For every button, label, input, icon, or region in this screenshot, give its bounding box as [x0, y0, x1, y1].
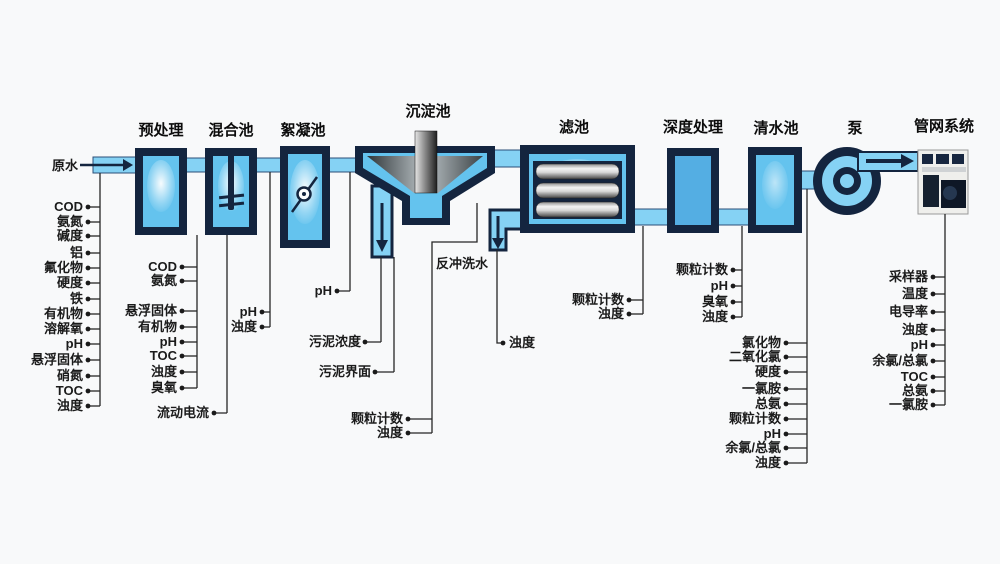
pipe-advanced-clearwater: [717, 209, 752, 225]
filter-media-icon: [533, 161, 622, 219]
center-shaft-icon: [415, 131, 437, 193]
param-label-raw_water-6: 铁: [70, 291, 83, 307]
param-label-raw_water-11: 硝氮: [57, 368, 83, 384]
clearwater-tank: [748, 147, 802, 233]
stage-title-pretreatment: 预处理: [138, 123, 183, 139]
stage-title-sedimentation: 沉淀池: [405, 104, 450, 120]
param-label-pretreatment-3: 有机物: [138, 319, 177, 335]
stage-title-filter: 滤池: [559, 120, 589, 136]
stage-title-network: 管网系统: [914, 119, 974, 135]
param-label-pretreatment-7: 臭氧: [151, 380, 177, 396]
param-label-advanced-1: pH: [711, 278, 728, 294]
param-label-network-8: 一氯胺: [889, 397, 928, 413]
pump-icon: [813, 147, 918, 215]
param-label-network-3: 浊度: [902, 322, 928, 338]
param-label-settled_water-1: 浊度: [377, 425, 403, 441]
param-label-pretreatment-5: TOC: [150, 348, 177, 364]
param-label-raw_water-5: 硬度: [57, 275, 83, 291]
param-label-raw_water-7: 有机物: [44, 306, 83, 322]
filter-tank: [520, 145, 635, 233]
param-label-raw_water-10: 悬浮固体: [31, 352, 83, 368]
stage-title-pump: 泵: [847, 121, 862, 137]
param-label-mixing-1: 浊度: [231, 319, 257, 335]
param-label-raw_water-0: COD: [54, 199, 83, 215]
param-label-clearwater-3: 一氯胺: [742, 381, 781, 397]
mixing-tank: [205, 148, 257, 235]
pipe-mixing-flocculation: [255, 158, 282, 172]
pretreatment-tank: [135, 148, 187, 235]
raw-water-label: 原水: [52, 158, 78, 174]
stage-title-clearwater: 清水池: [753, 121, 798, 137]
param-label-pretreatment-2: 悬浮固体: [125, 303, 177, 319]
streaming-current-label: 流动电流: [157, 405, 209, 421]
param-label-raw_water-2: 碱度: [57, 228, 83, 244]
param-label-pretreatment-1: 氨氮: [151, 273, 177, 289]
flocculation-tank: [280, 146, 330, 248]
param-label-advanced-3: 浊度: [702, 309, 728, 325]
sludge-interface-label: 污泥界面: [319, 364, 371, 380]
param-label-network-4: pH: [911, 337, 928, 353]
process-flow-diagram: 预处理 混合池 絮凝池 沉淀池 滤池 深度处理 清水池 泵 管网系统 原水 流动…: [0, 0, 1000, 564]
backwash-turbidity-label: 浊度: [509, 335, 535, 351]
backwash-drain-pipe: [490, 210, 522, 250]
param-label-raw_water-9: pH: [66, 336, 83, 352]
param-label-advanced-0: 颗粒计数: [676, 262, 728, 278]
param-label-raw_water-4: 氟化物: [44, 260, 83, 276]
param-label-clearwater-5: 颗粒计数: [729, 411, 781, 427]
sludge-concentration-label: 污泥浓度: [309, 334, 361, 350]
network-instrument: [918, 150, 968, 214]
pipe-pretreatment-mixing: [185, 158, 207, 172]
param-label-clearwater-2: 硬度: [755, 364, 781, 380]
stage-title-mixing: 混合池: [208, 123, 253, 139]
param-label-pretreatment-6: 浊度: [151, 364, 177, 380]
param-label-clearwater-7: 余氯/总氯: [725, 440, 781, 456]
param-label-clearwater-1: 二氧化氯: [729, 349, 781, 365]
param-label-mixing-0: pH: [240, 304, 257, 320]
stage-title-flocculation: 絮凝池: [280, 123, 325, 139]
flocculation-ph-label: pH: [315, 283, 332, 299]
param-label-raw_water-3: 铝: [70, 245, 83, 261]
param-label-clearwater-4: 总氨: [755, 396, 781, 412]
pipe-filter-advanced: [633, 209, 669, 225]
param-label-network-2: 电导率: [889, 304, 928, 320]
pipe-sedimentation-filter: [491, 150, 522, 167]
param-label-clearwater-8: 浊度: [755, 455, 781, 471]
stage-title-advanced: 深度处理: [663, 120, 723, 136]
pipe-flocculation-sedimentation: [328, 158, 359, 172]
sludge-drain-pipe: [372, 186, 392, 257]
param-label-network-0: 采样器: [889, 269, 928, 285]
param-label-advanced-2: 臭氧: [702, 294, 728, 310]
param-label-network-1: 温度: [902, 286, 928, 302]
param-label-raw_water-12: TOC: [56, 383, 83, 399]
param-label-raw_water-13: 浊度: [57, 398, 83, 414]
param-label-network-5: 余氯/总氯: [872, 353, 928, 369]
param-label-filter-1: 浊度: [598, 306, 624, 322]
param-label-raw_water-8: 溶解氧: [44, 321, 83, 337]
backwash-water-label: 反冲洗水: [436, 256, 488, 272]
advanced-treatment-tank: [667, 148, 719, 233]
